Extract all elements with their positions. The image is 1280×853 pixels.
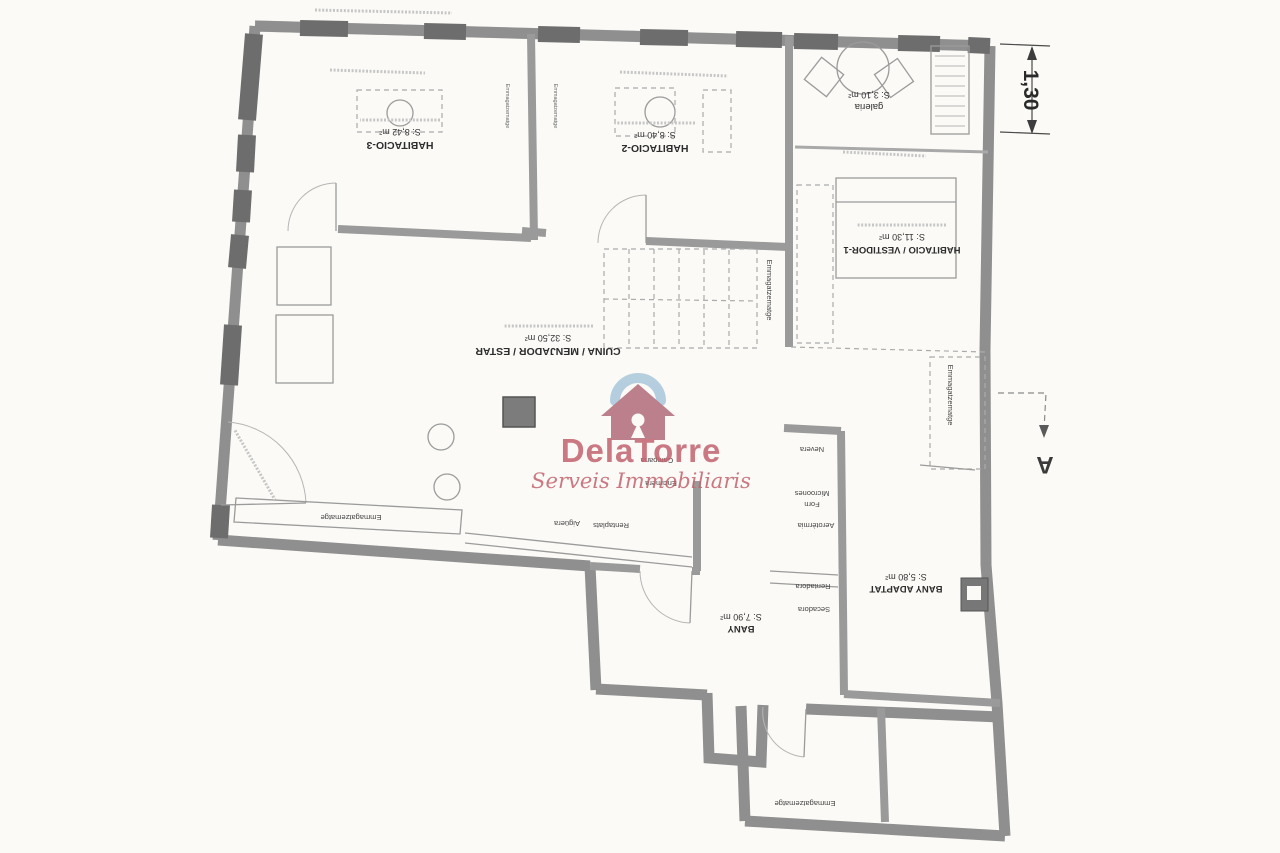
label-storage-corridor: Emmagatzematge <box>765 260 774 321</box>
width-dimension: 1,30 <box>1000 44 1050 134</box>
label-rentaplats: Rentaplats <box>593 521 629 530</box>
svg-text:HABITACIO-2: HABITACIO-2 <box>621 142 688 154</box>
svg-text:BANY: BANY <box>727 623 755 634</box>
label-storage-room: Emmagatzematge <box>775 799 836 808</box>
room-habitacio-2: HABITACIO-2 S: 8,40 m² <box>615 123 695 154</box>
label-aiguera: Aigüera <box>553 519 580 528</box>
floor-plan-drawing: 1,30 A HABITACIO-3 S: 8,42 m² HABITACIO-… <box>0 0 1280 853</box>
label-nevera: Nevera <box>799 445 824 454</box>
label-secadora: Secadora <box>797 605 830 614</box>
label-storage-hab2: Emmagatzematge <box>552 84 558 129</box>
room-bany-adaptat: BANY ADAPTAT S: 5,80 m² <box>869 572 942 594</box>
svg-text:CUINA / MENJADOR / ESTAR: CUINA / MENJADOR / ESTAR <box>475 345 621 357</box>
room-galeria: galeria S: 3,10 m² <box>848 90 890 112</box>
svg-text:S: 8,40 m²: S: 8,40 m² <box>634 130 676 140</box>
svg-text:S: 32,50 m²: S: 32,50 m² <box>525 333 572 343</box>
brand-name: DelaTorre <box>561 432 722 469</box>
svg-text:galeria: galeria <box>854 101 883 112</box>
label-forn-microones: Forn Microones <box>794 489 829 509</box>
svg-text:S: 8,42 m²: S: 8,42 m² <box>379 127 421 137</box>
dimension-value: 1,30 <box>1019 70 1042 111</box>
room-habitacio-3: HABITACIO-3 S: 8,42 m² <box>360 120 440 151</box>
svg-text:S: 3,10 m²: S: 3,10 m² <box>848 90 890 100</box>
room-bany: BANY S: 7,90 m² <box>720 612 762 634</box>
section-marker: A <box>998 393 1054 478</box>
svg-text:S: 7,90 m²: S: 7,90 m² <box>720 612 762 622</box>
svg-text:HABITACIO / VESTIDOR-1: HABITACIO / VESTIDOR-1 <box>843 244 961 255</box>
svg-text:S: 5,80 m²: S: 5,80 m² <box>885 572 927 582</box>
svg-text:Microones: Microones <box>794 489 829 498</box>
svg-text:Forn: Forn <box>804 500 819 509</box>
room-cuina: CUINA / MENJADOR / ESTAR S: 32,50 m² <box>475 326 621 357</box>
agency-watermark: DelaTorre Serveis Immobiliaris <box>531 378 751 493</box>
svg-text:HABITACIO-3: HABITACIO-3 <box>366 139 433 151</box>
label-rentadora: Rentadora <box>795 582 831 591</box>
svg-text:S: 11,30 m²: S: 11,30 m² <box>879 232 925 242</box>
brand-tagline: Serveis Immobiliaris <box>531 469 751 493</box>
label-aerotermia: Aerotèrmia <box>797 521 835 530</box>
label-storage-wall: Emmagatzematge <box>946 365 955 426</box>
floor-plan-scan: 1,30 A HABITACIO-3 S: 8,42 m² HABITACIO-… <box>0 0 1280 853</box>
label-storage-hab3: Emmagatzematge <box>504 84 510 129</box>
svg-text:BANY ADAPTAT: BANY ADAPTAT <box>869 583 942 594</box>
label-storage-closet: Emmagatzematge <box>321 513 382 522</box>
section-letter: A <box>1036 451 1053 478</box>
room-vestidor-1: HABITACIO / VESTIDOR-1 S: 11,30 m² <box>843 225 961 255</box>
